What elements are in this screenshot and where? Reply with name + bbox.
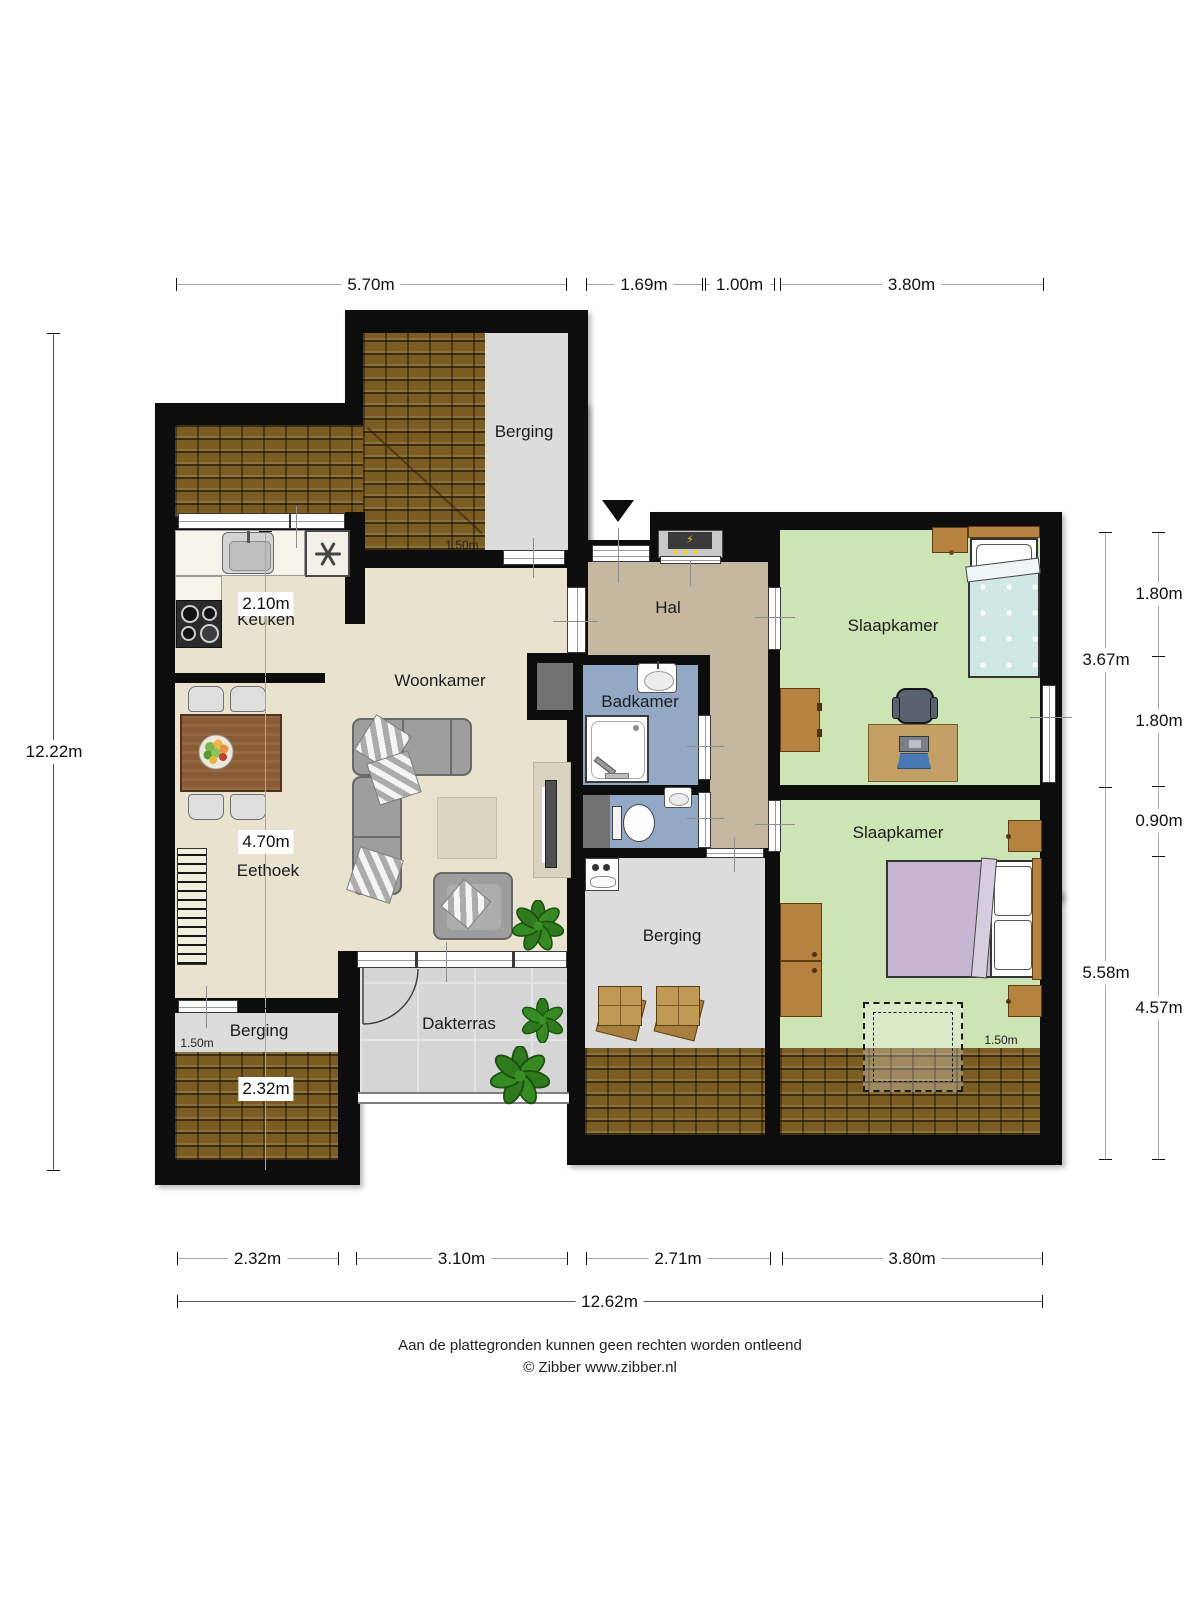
- bathroom-sink: [637, 663, 677, 693]
- shaft: [527, 653, 583, 720]
- nightstand: [1008, 985, 1042, 1017]
- dimension-right-outer-2: 1.80m: [1158, 656, 1159, 786]
- dimension-bottom-total: 12.62m: [177, 1301, 1042, 1302]
- wall: [780, 785, 1062, 800]
- room-label-berging-left: Berging: [230, 1021, 289, 1041]
- dimension-label: 5.58m: [1078, 961, 1133, 985]
- electric-panel-icon: ⚡: [668, 532, 712, 549]
- dimension-bottom-2: 3.10m: [356, 1258, 567, 1259]
- dimension-left-3: 2.32m: [265, 1008, 266, 1170]
- room-label-slaapkamer-1: Slaapkamer: [848, 616, 939, 636]
- dimension-label: 3.80m: [882, 275, 941, 295]
- dining-chair: [230, 686, 266, 712]
- shaft: [583, 795, 610, 850]
- tick-line: [618, 528, 619, 583]
- dimension-label: 4.57m: [1131, 996, 1186, 1020]
- folding-chair: [656, 986, 700, 1026]
- laptop: [897, 753, 931, 769]
- dimension-right-outer-4: 4.57m: [1158, 856, 1159, 1159]
- dimension-label: 2.32m: [228, 1249, 287, 1269]
- door-hal-slaapkamer1: [768, 587, 781, 650]
- freezer-star-icon: [307, 532, 348, 575]
- folding-chair: [598, 986, 642, 1026]
- dimension-bottom-4: 3.80m: [782, 1258, 1042, 1259]
- room-label-woonkamer: Woonkamer: [394, 671, 485, 691]
- entrance-arrow-icon: [602, 500, 634, 522]
- faucet-icon: [247, 531, 250, 543]
- dining-chair: [188, 794, 224, 820]
- tick-line: [296, 506, 297, 548]
- toilet: [623, 804, 655, 842]
- door-hal-berging: [706, 848, 764, 858]
- rug: [437, 797, 497, 859]
- faucet-icon: [657, 661, 659, 669]
- bed-duvet: [968, 572, 1040, 678]
- room-label-dakterras: Dakterras: [422, 1014, 496, 1034]
- dimension-label: 4.70m: [238, 830, 293, 854]
- door-hal-toilet: [698, 792, 711, 848]
- floorplan-page: ⚡: [0, 0, 1200, 1600]
- tick-line: [686, 746, 724, 747]
- dimension-left-1: 2.10m: [265, 531, 266, 676]
- dimension-label: 5.70m: [341, 275, 400, 295]
- door-hal-slaapkamer2: [768, 800, 781, 852]
- plant-icon: [520, 998, 565, 1043]
- dimension-label: 3.10m: [432, 1249, 491, 1269]
- dimension-label: 2.32m: [238, 1077, 293, 1101]
- fuse-dot: [693, 550, 697, 554]
- dimension-label: 3.67m: [1078, 648, 1133, 672]
- room-label-badkamer: Badkamer: [601, 692, 678, 712]
- dimension-label: 1.80m: [1131, 709, 1186, 733]
- tick-line: [755, 617, 795, 618]
- roof-area: [175, 1052, 338, 1160]
- toilet-sink: [664, 787, 692, 808]
- dimension-right-outer-1: 1.80m: [1158, 532, 1159, 656]
- dimension-label: 2.10m: [238, 592, 293, 616]
- dimension-left-total: 12.22m: [53, 333, 54, 1170]
- door-hal-badkamer: [698, 715, 711, 780]
- bed-pillow: [994, 920, 1032, 970]
- dining-chair: [230, 794, 266, 820]
- nightstand: [1008, 820, 1042, 852]
- bed-headboard: [1032, 858, 1042, 980]
- meter-cupboard: ⚡: [658, 530, 723, 558]
- dimension-left-2: 4.70m: [265, 676, 266, 1008]
- plant-icon: [512, 900, 564, 952]
- berging-left-window: [178, 1000, 238, 1013]
- dimension-label: 12.62m: [575, 1292, 644, 1312]
- tick-line: [533, 538, 534, 578]
- door-hal-woonkamer: [567, 587, 586, 653]
- dimension-right-outer-3: 0.90m: [1158, 786, 1159, 856]
- shower-drain: [633, 725, 639, 731]
- terrace-door-swing: [362, 968, 419, 1025]
- copyright-text: © Zibber www.zibber.nl: [523, 1359, 677, 1376]
- piano: [177, 848, 207, 965]
- laptop: [899, 736, 929, 752]
- terrace-windows: [357, 951, 567, 968]
- berging-top-window: [503, 550, 565, 565]
- dimension-label: 1.80m: [1131, 582, 1186, 606]
- washing-machine: [585, 858, 619, 891]
- roof-area: [585, 1048, 765, 1135]
- dimension-top-2: 1.69m: [586, 284, 702, 285]
- dimension-bottom-1: 2.32m: [177, 1258, 338, 1259]
- dresser: [780, 688, 820, 752]
- dimension-top-1: 5.70m: [176, 284, 566, 285]
- tick-line: [734, 838, 735, 872]
- room-label-eethoek: Eethoek: [237, 861, 299, 881]
- tick-line: [206, 986, 207, 1028]
- tick-line: [553, 621, 598, 622]
- roof-hatch-outline: [863, 1002, 963, 1092]
- room-label-slaapkamer-2: Slaapkamer: [853, 823, 944, 843]
- dimension-right-inner-2: 5.58m: [1105, 787, 1106, 1159]
- toilet: [612, 806, 622, 840]
- desk-chair: [896, 688, 934, 724]
- front-door: [592, 545, 650, 562]
- fruit-bowl-icon: [198, 734, 234, 770]
- shower: [585, 715, 649, 783]
- tick-line: [686, 818, 724, 819]
- dimension-top-3: 1.00m: [705, 284, 774, 285]
- room-label-berging-mid: Berging: [643, 926, 702, 946]
- dimension-label: 12.22m: [22, 740, 87, 764]
- wardrobe: [780, 903, 822, 1017]
- tick-line: [690, 560, 691, 586]
- kitchen-window: [178, 513, 345, 529]
- wall: [157, 673, 325, 683]
- slaapkamer1-window: [1042, 685, 1056, 783]
- height-marker: 1.50m: [180, 1036, 213, 1050]
- height-marker: 1.50m: [984, 1033, 1017, 1047]
- fuse-dot: [683, 550, 687, 554]
- dimension-label: 0.90m: [1131, 809, 1186, 833]
- plant-icon: [490, 1046, 550, 1106]
- dimension-top-4: 3.80m: [780, 284, 1043, 285]
- nightstand: [932, 527, 968, 553]
- tick-line: [446, 942, 447, 982]
- tick-line: [755, 824, 795, 825]
- dimension-label: 2.71m: [648, 1249, 707, 1269]
- bed-headboard: [968, 526, 1040, 538]
- stove: [176, 600, 222, 648]
- tv: [545, 780, 557, 868]
- disclaimer-text: Aan de plattegronden kunnen geen rechten…: [398, 1337, 802, 1354]
- bed-pillow: [994, 866, 1032, 916]
- room-label-berging-top: Berging: [495, 422, 554, 442]
- dimension-label: 1.69m: [614, 275, 673, 295]
- tick-line: [1030, 717, 1072, 718]
- refrigerator: [305, 530, 350, 577]
- dimension-label: 3.80m: [882, 1249, 941, 1269]
- room-label-hal: Hal: [655, 598, 681, 618]
- dimension-bottom-3: 2.71m: [586, 1258, 770, 1259]
- dimension-label: 1.00m: [710, 275, 769, 295]
- kitchen-sink: [222, 532, 274, 574]
- dimension-right-inner-1: 3.67m: [1105, 532, 1106, 787]
- dining-chair: [188, 686, 224, 712]
- height-marker: 1.50m: [445, 538, 478, 552]
- fuse-dot: [673, 550, 677, 554]
